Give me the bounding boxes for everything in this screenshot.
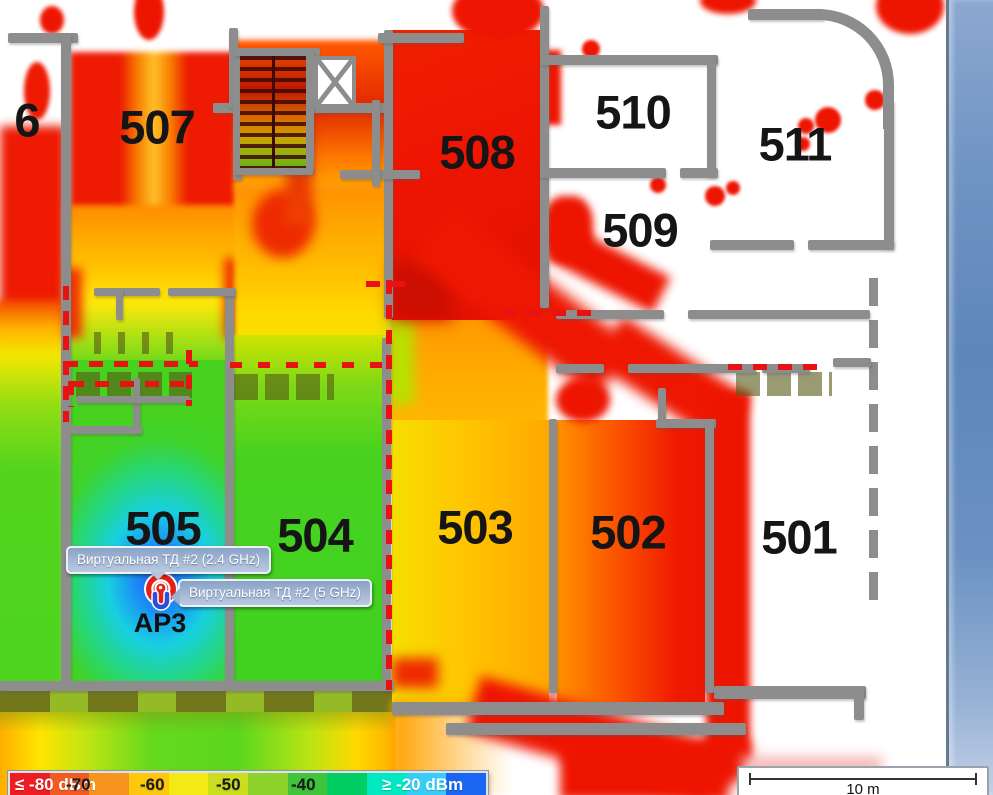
legend-segment [327,773,367,795]
legend-label: -60 [140,775,165,795]
room-label-502: 502 [590,505,665,560]
attenuation-wall-dashed [386,280,392,690]
legend-label: ≥ -20 dBm [382,775,463,795]
legend-segment [248,773,288,795]
room-label-509: 509 [602,203,677,258]
attenuation-wall-dashed [68,381,74,407]
panel-edge [946,0,993,795]
attenuation-wall-dashed [728,364,824,370]
room-label-504: 504 [277,508,352,563]
room-label-506: 6 [14,93,39,148]
room-label-507: 507 [119,100,194,155]
scale-bar-label: 10 m [739,781,987,795]
legend-label: -70 [66,775,91,795]
scale-bar-line [749,778,977,780]
room-label-510: 510 [595,85,670,140]
attenuation-wall-dashed [70,381,194,387]
attenuation-wall-dashed [366,281,412,287]
room-label-508: 508 [439,125,514,180]
room-label-503: 503 [437,500,512,555]
attenuation-wall-dashed [230,362,392,368]
scale-bar: 10 m [737,766,989,795]
attenuation-wall-dashed [186,350,192,406]
signal-legend: ≤ -80 dBm-70-60-50-40≥ -20 dBm [8,771,488,795]
legend-label: -50 [216,775,241,795]
legend-label: -40 [291,775,316,795]
room-label-501: 501 [761,510,836,565]
ap-tooltip-24ghz[interactable]: Виртуальная ТД #2 (2.4 GHz) [66,546,271,574]
room-label-511: 511 [759,117,832,172]
attenuation-wall-dashed [502,310,602,316]
attenuation-wall-dashed [64,361,198,367]
ap-tooltip-5ghz[interactable]: Виртуальная ТД #2 (5 GHz) [178,579,372,607]
ap-label: AP3 [134,608,187,639]
floorplan-heatmap-view: 6 507 508 510 511 509 505 504 503 502 50… [0,0,993,795]
legend-segment [169,773,209,795]
